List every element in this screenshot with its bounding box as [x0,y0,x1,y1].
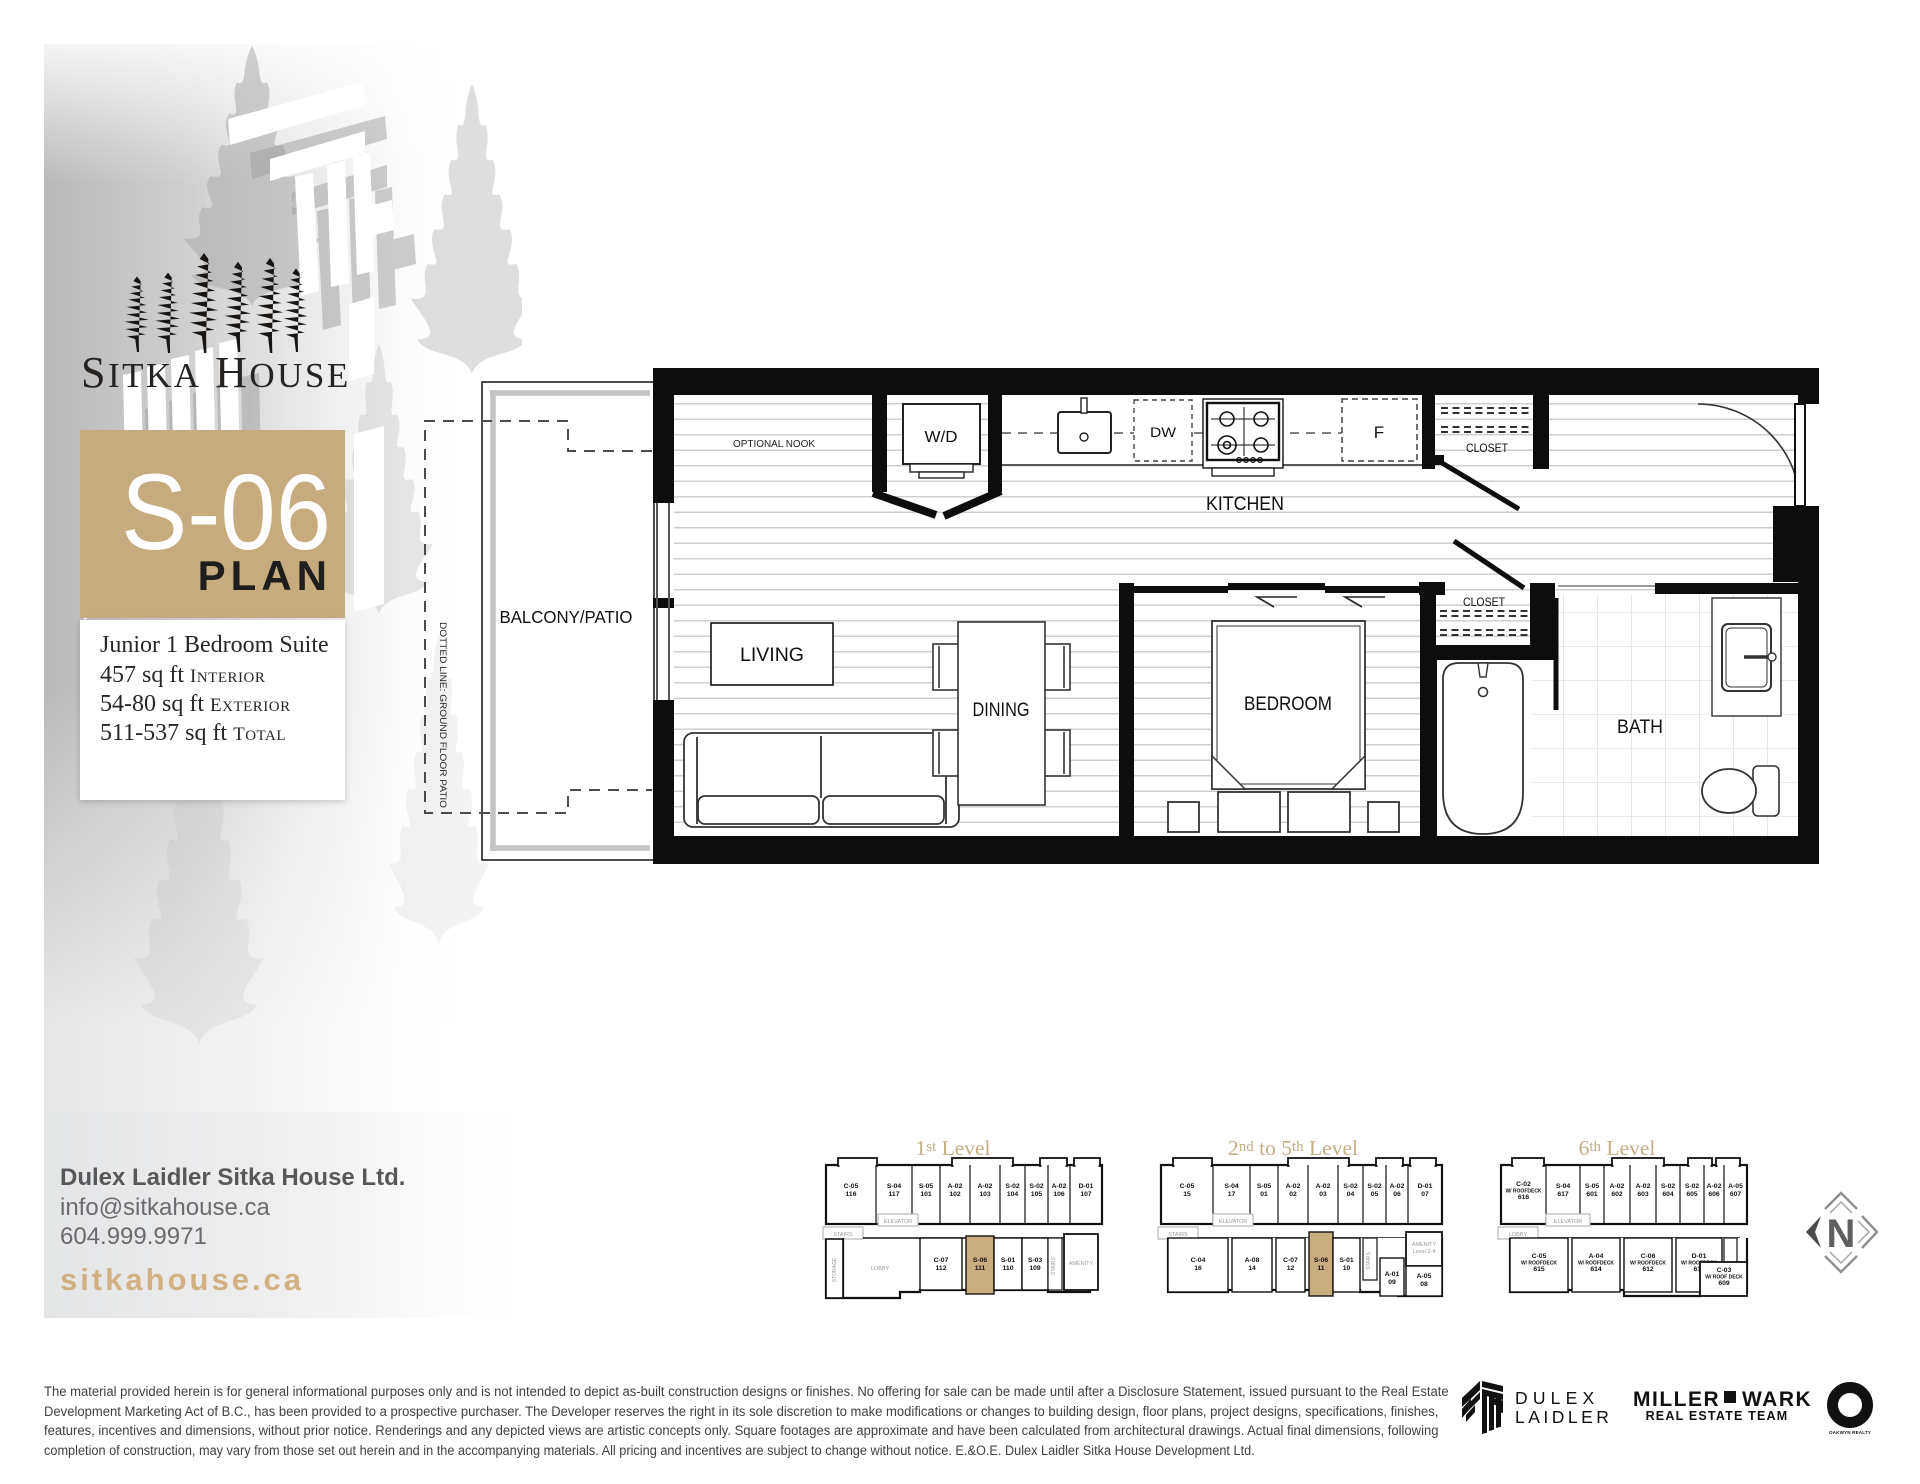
svg-text:615: 615 [1533,1266,1545,1273]
svg-text:S-05: S-05 [919,1183,934,1190]
svg-text:S-05: S-05 [1585,1183,1600,1190]
svg-text:W/D: W/D [925,429,958,446]
svg-text:F: F [1374,423,1384,442]
svg-text:07: 07 [1421,1191,1429,1198]
svg-text:A-02: A-02 [1390,1183,1405,1190]
svg-text:603: 603 [1637,1191,1649,1198]
svg-text:06: 06 [1393,1191,1401,1198]
svg-text:S-01: S-01 [1001,1257,1016,1264]
svg-text:S-04: S-04 [1556,1183,1571,1190]
svg-text:17: 17 [1228,1191,1236,1198]
svg-text:02: 02 [1289,1191,1297,1198]
svg-text:BEDROOM: BEDROOM [1244,694,1332,715]
svg-text:107: 107 [1080,1191,1092,1198]
svg-text:LAIDLER: LAIDLER [1515,1407,1612,1427]
svg-text:LOBBY: LOBBY [1509,1232,1528,1238]
svg-text:616: 616 [1518,1194,1530,1201]
svg-text:105: 105 [1031,1191,1043,1198]
svg-text:C-06: C-06 [1641,1253,1656,1260]
svg-text:S-01: S-01 [1339,1257,1354,1264]
svg-text:A-02: A-02 [1316,1183,1331,1190]
svg-text:BALCONY/PATIO: BALCONY/PATIO [500,607,633,627]
svg-text:STAIRS: STAIRS [1366,1251,1372,1269]
svg-text:2nd to 5th Level: 2nd to 5th Level [1228,1136,1358,1160]
svg-text:602: 602 [1611,1191,1623,1198]
svg-text:C-05: C-05 [844,1183,859,1190]
svg-text:BATH: BATH [1617,717,1663,738]
svg-text:S-05: S-05 [1257,1183,1272,1190]
svg-text:106: 106 [1053,1191,1065,1198]
svg-text:S-06: S-06 [973,1257,988,1264]
svg-text:MILLER: MILLER [1633,1388,1720,1411]
svg-text:117: 117 [889,1191,900,1198]
svg-text:C-05: C-05 [1180,1183,1195,1190]
svg-text:A-02: A-02 [1707,1183,1722,1190]
svg-text:A-05: A-05 [1728,1183,1743,1190]
svg-text:C-03: C-03 [1717,1267,1732,1274]
svg-text:101: 101 [920,1191,932,1198]
svg-text:A-08: A-08 [1245,1257,1260,1264]
svg-text:09: 09 [1388,1279,1396,1286]
svg-text:STAIRS: STAIRS [1051,1256,1057,1274]
svg-text:08: 08 [1420,1281,1428,1288]
svg-text:C-07: C-07 [1283,1257,1298,1264]
svg-text:A-02: A-02 [948,1183,963,1190]
svg-text:A-05: A-05 [1417,1273,1432,1280]
svg-text:C-02: C-02 [1516,1181,1531,1188]
svg-text:103: 103 [979,1191,991,1198]
svg-text:14: 14 [1248,1265,1256,1272]
svg-text:S-02: S-02 [1367,1183,1382,1190]
svg-text:A-02: A-02 [1286,1183,1301,1190]
svg-text:12: 12 [1287,1265,1295,1272]
svg-text:6th Level: 6th Level [1579,1136,1656,1160]
svg-text:STAIRS: STAIRS [833,1232,853,1238]
svg-text:112: 112 [936,1265,947,1272]
svg-text:REAL ESTATE TEAM: REAL ESTATE TEAM [1646,1409,1789,1423]
svg-text:DOTTED LINE: GROUND FLOOR PATI: DOTTED LINE: GROUND FLOOR PATIO [437,622,448,808]
svg-text:10: 10 [1343,1265,1351,1272]
svg-text:612: 612 [1642,1266,1654,1273]
svg-text:116: 116 [846,1191,857,1198]
svg-text:S-04: S-04 [1224,1183,1239,1190]
svg-text:11: 11 [1317,1265,1324,1272]
svg-text:KITCHEN: KITCHEN [1206,494,1284,515]
svg-text:S-02: S-02 [1661,1183,1676,1190]
svg-text:OPTIONAL NOOK: OPTIONAL NOOK [733,438,815,450]
svg-text:609: 609 [1718,1280,1730,1287]
svg-text:AMENITY: AMENITY [1412,1242,1437,1248]
svg-text:109: 109 [1029,1265,1041,1272]
svg-text:AMENITY: AMENITY [1069,1261,1094,1267]
svg-text:STAIRS: STAIRS [1168,1232,1188,1238]
svg-text:A-02: A-02 [978,1183,993,1190]
svg-text:05: 05 [1371,1191,1379,1198]
svg-text:DINING: DINING [973,700,1030,721]
svg-text:ELEVATOR: ELEVATOR [1554,1219,1582,1225]
svg-text:601: 601 [1586,1191,1598,1198]
svg-text:16: 16 [1194,1265,1202,1272]
svg-text:DW: DW [1150,424,1177,440]
svg-text:A-01: A-01 [1385,1271,1400,1278]
svg-text:CLOSET: CLOSET [1466,441,1509,455]
svg-text:D-01: D-01 [1418,1183,1433,1190]
svg-text:111: 111 [975,1265,986,1272]
svg-text:110: 110 [1003,1265,1014,1272]
svg-text:605: 605 [1686,1191,1698,1198]
svg-text:D-01: D-01 [1079,1183,1094,1190]
svg-text:01: 01 [1260,1191,1268,1198]
svg-text:S-04: S-04 [887,1183,902,1190]
svg-text:C-07: C-07 [934,1257,949,1264]
svg-text:607: 607 [1730,1191,1742,1198]
svg-text:WARK: WARK [1742,1388,1812,1411]
svg-text:STORAGE: STORAGE [832,1257,838,1282]
svg-text:D-01: D-01 [1692,1253,1707,1260]
svg-text:1st Level: 1st Level [915,1136,990,1160]
svg-text:617: 617 [1557,1191,1569,1198]
svg-text:15: 15 [1183,1191,1191,1198]
svg-text:S-02: S-02 [1343,1183,1358,1190]
svg-text:OAKWYN REALTY: OAKWYN REALTY [1829,1430,1871,1435]
svg-text:Level 2-4: Level 2-4 [1413,1249,1436,1255]
svg-text:04: 04 [1347,1191,1355,1198]
svg-text:03: 03 [1319,1191,1327,1198]
svg-text:ELEVATOR: ELEVATOR [1219,1219,1247,1225]
svg-text:S-02: S-02 [1005,1183,1020,1190]
svg-text:N: N [1827,1212,1856,1256]
svg-text:LOBBY: LOBBY [871,1266,890,1272]
svg-text:C-05: C-05 [1532,1253,1547,1260]
svg-text:S-06: S-06 [1314,1257,1329,1264]
svg-text:LIVING: LIVING [740,645,804,666]
svg-text:S-02: S-02 [1685,1183,1700,1190]
svg-text:A-02: A-02 [1610,1183,1625,1190]
svg-text:C-04: C-04 [1191,1257,1206,1264]
svg-text:S-02: S-02 [1029,1183,1044,1190]
svg-text:614: 614 [1590,1266,1602,1273]
svg-text:CLOSET: CLOSET [1463,595,1506,609]
svg-text:A-04: A-04 [1589,1253,1604,1260]
svg-text:S-03: S-03 [1028,1257,1043,1264]
svg-text:102: 102 [949,1191,961,1198]
svg-text:A-02: A-02 [1052,1183,1067,1190]
svg-text:606: 606 [1708,1191,1720,1198]
svg-text:A-02: A-02 [1636,1183,1651,1190]
svg-text:104: 104 [1007,1191,1019,1198]
svg-text:604: 604 [1662,1191,1674,1198]
svg-text:DULEX: DULEX [1515,1388,1599,1408]
svg-text:ELEVATOR: ELEVATOR [884,1219,912,1225]
